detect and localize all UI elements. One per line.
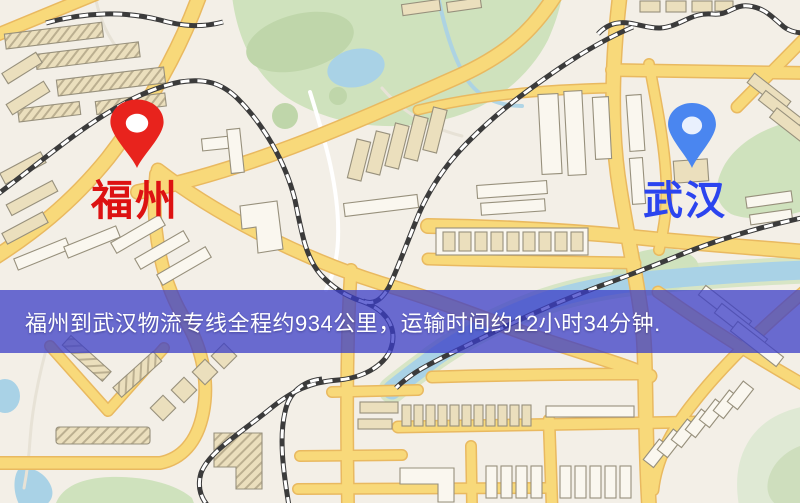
route-info-banner: 福州到武汉物流专线全程约934公里，运输时间约12小时34分钟. xyxy=(0,290,800,353)
destination-pin xyxy=(668,103,716,168)
origin-pin xyxy=(110,100,163,168)
origin-label: 福州 xyxy=(91,181,179,223)
map-screenshot: 福州 武汉 福州到武汉物流专线全程约934公里，运输时间约12小时34分钟. xyxy=(0,0,800,503)
destination-label: 武汉 xyxy=(643,181,727,221)
route-info-text: 福州到武汉物流专线全程约934公里，运输时间约12小时34分钟. xyxy=(25,306,661,338)
map-canvas xyxy=(0,0,800,503)
